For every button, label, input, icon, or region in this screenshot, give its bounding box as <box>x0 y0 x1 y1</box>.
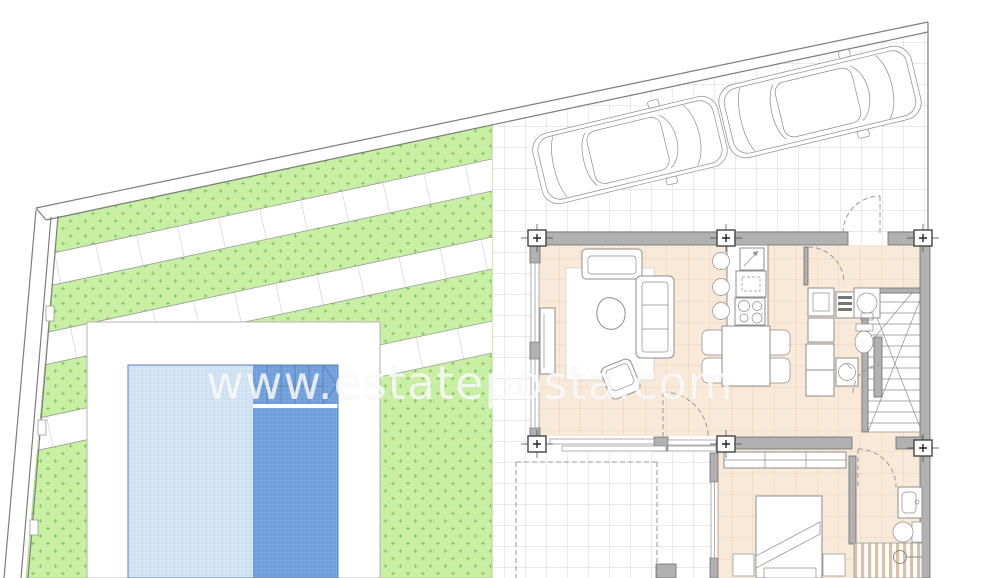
window-bedroom-left <box>711 482 718 558</box>
floor-plan-drawing <box>0 0 1000 578</box>
wall-utility-jog <box>874 337 882 397</box>
kitchen <box>713 245 769 330</box>
swimming-pool <box>128 365 338 578</box>
dining-table <box>722 326 770 386</box>
double-bed <box>756 496 822 578</box>
wall-bedroom-bath-divider <box>849 456 856 544</box>
shower <box>854 543 922 578</box>
tall-cabinet <box>808 288 834 316</box>
coffee-table <box>597 298 625 330</box>
corner-washbasin <box>854 288 880 320</box>
tv-unit <box>540 308 555 374</box>
loveseat <box>582 249 642 279</box>
wall-hall-partition <box>804 247 808 285</box>
nightstand <box>823 554 845 576</box>
terrace-pillar <box>656 564 676 578</box>
toilet <box>893 522 922 542</box>
sofa <box>636 276 674 358</box>
dryer <box>836 358 858 386</box>
wardrobe <box>724 452 846 468</box>
washbasin <box>898 487 922 518</box>
floor-plan: www.estateposta.com <box>0 0 1000 578</box>
bar-stools <box>713 253 730 320</box>
pool-shallow-area <box>128 365 253 578</box>
guest-toilet <box>855 324 873 353</box>
wall-top-left <box>530 232 848 245</box>
base-cabinet <box>806 344 834 370</box>
nightstand <box>733 554 754 576</box>
washing-machine <box>836 292 854 318</box>
wall-bedroom-top <box>718 437 852 449</box>
